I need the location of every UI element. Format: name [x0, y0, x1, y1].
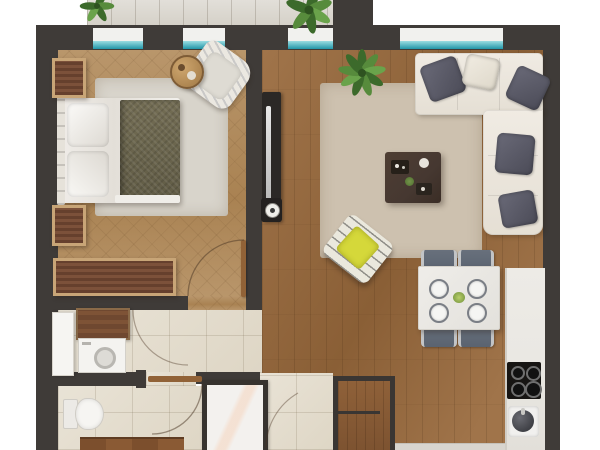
- table-decor: [187, 71, 196, 80]
- bed: [60, 98, 180, 203]
- sheet-fold: [115, 195, 180, 203]
- hall-door-leaf: [52, 312, 74, 376]
- bedroom-door-threshold: [188, 296, 246, 310]
- media-stool: [261, 198, 282, 222]
- sofa-pillow: [494, 132, 535, 175]
- balcony-floor: [87, 0, 333, 25]
- closet-shelf: [76, 308, 130, 340]
- washer-door: [94, 347, 116, 369]
- kitchen-sink: [508, 406, 539, 437]
- duvet: [120, 100, 180, 200]
- lounge-cushion: [335, 225, 380, 270]
- vanity-edge: [80, 437, 184, 450]
- sofa-pillow: [497, 189, 538, 229]
- dresser: [53, 258, 176, 296]
- toilet-bowl: [75, 398, 104, 430]
- entry-floor: [259, 373, 333, 450]
- tray-dot: [421, 187, 425, 191]
- coffee-table: [385, 152, 441, 203]
- bed-pillow: [67, 103, 109, 147]
- sprig: [405, 177, 414, 186]
- tray-dot: [402, 166, 405, 169]
- window-glass: [400, 41, 503, 49]
- bedroom-living-wall: [246, 50, 262, 310]
- stool-top: [265, 203, 280, 218]
- stool-center: [270, 208, 275, 213]
- place-setting: [429, 279, 449, 299]
- washing-machine: [78, 338, 126, 373]
- balcony-door-glass: [288, 41, 333, 49]
- place-setting: [467, 279, 487, 299]
- tray: [391, 160, 409, 174]
- burner: [511, 366, 525, 380]
- entry-cabinet: [333, 376, 395, 450]
- burner: [526, 366, 541, 381]
- window-sill: [183, 28, 225, 41]
- window-sill: [400, 28, 503, 41]
- toilet: [63, 398, 103, 428]
- window-sill: [93, 28, 143, 41]
- cooktop: [507, 362, 541, 399]
- bowl: [419, 158, 429, 168]
- shower: [202, 380, 268, 450]
- washer-panel: [82, 342, 91, 345]
- headboard: [57, 96, 65, 205]
- counter-edge: [385, 443, 505, 450]
- burner: [525, 381, 542, 398]
- centerpiece-plant: [453, 292, 465, 303]
- bathroom-door-leaf: [148, 376, 202, 382]
- place-setting: [467, 303, 487, 323]
- dining-table: [418, 266, 500, 330]
- balcony-door-sill: [288, 28, 333, 41]
- tv: [266, 106, 271, 202]
- nightstand: [52, 205, 86, 246]
- nightstand: [52, 58, 86, 98]
- table-decor: [178, 64, 185, 71]
- bed-pillow: [67, 151, 109, 197]
- side-table: [170, 55, 204, 89]
- floor-plan: [0, 0, 600, 450]
- bedroom-door-leaf: [241, 240, 246, 297]
- bathroom-wall-post: [136, 370, 146, 388]
- burner: [511, 382, 526, 397]
- cabinet-shelf-line: [338, 411, 380, 414]
- sink-faucet: [521, 408, 525, 415]
- sofa-pillow: [461, 53, 501, 91]
- balcony-wall-stub: [333, 0, 373, 25]
- place-setting: [429, 303, 449, 323]
- tray-dot: [395, 164, 399, 168]
- window-glass: [93, 41, 143, 49]
